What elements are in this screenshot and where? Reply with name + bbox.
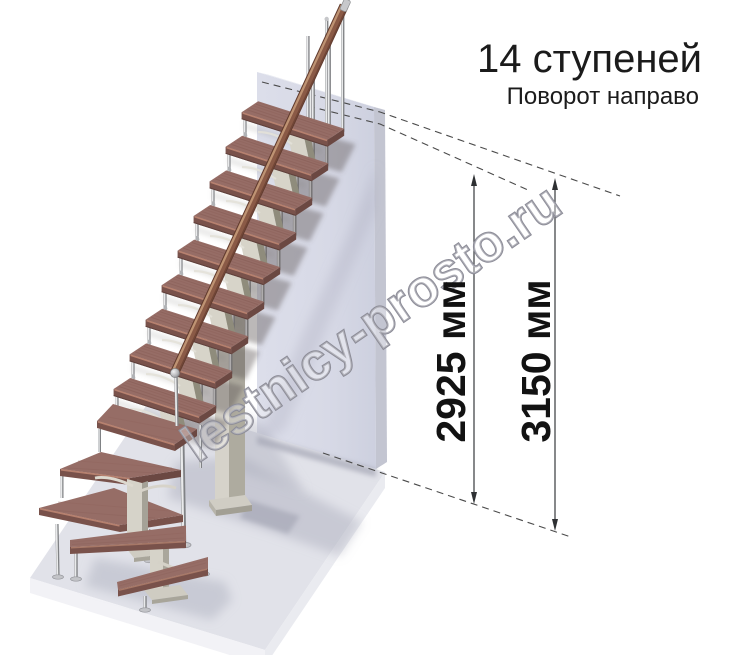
svg-text:2925 мм: 2925 мм: [428, 279, 474, 442]
svg-text:14 ступеней: 14 ступеней: [477, 37, 702, 81]
svg-text:3150 мм: 3150 мм: [513, 279, 559, 442]
svg-text:Поворот направо: Поворот направо: [507, 83, 699, 110]
